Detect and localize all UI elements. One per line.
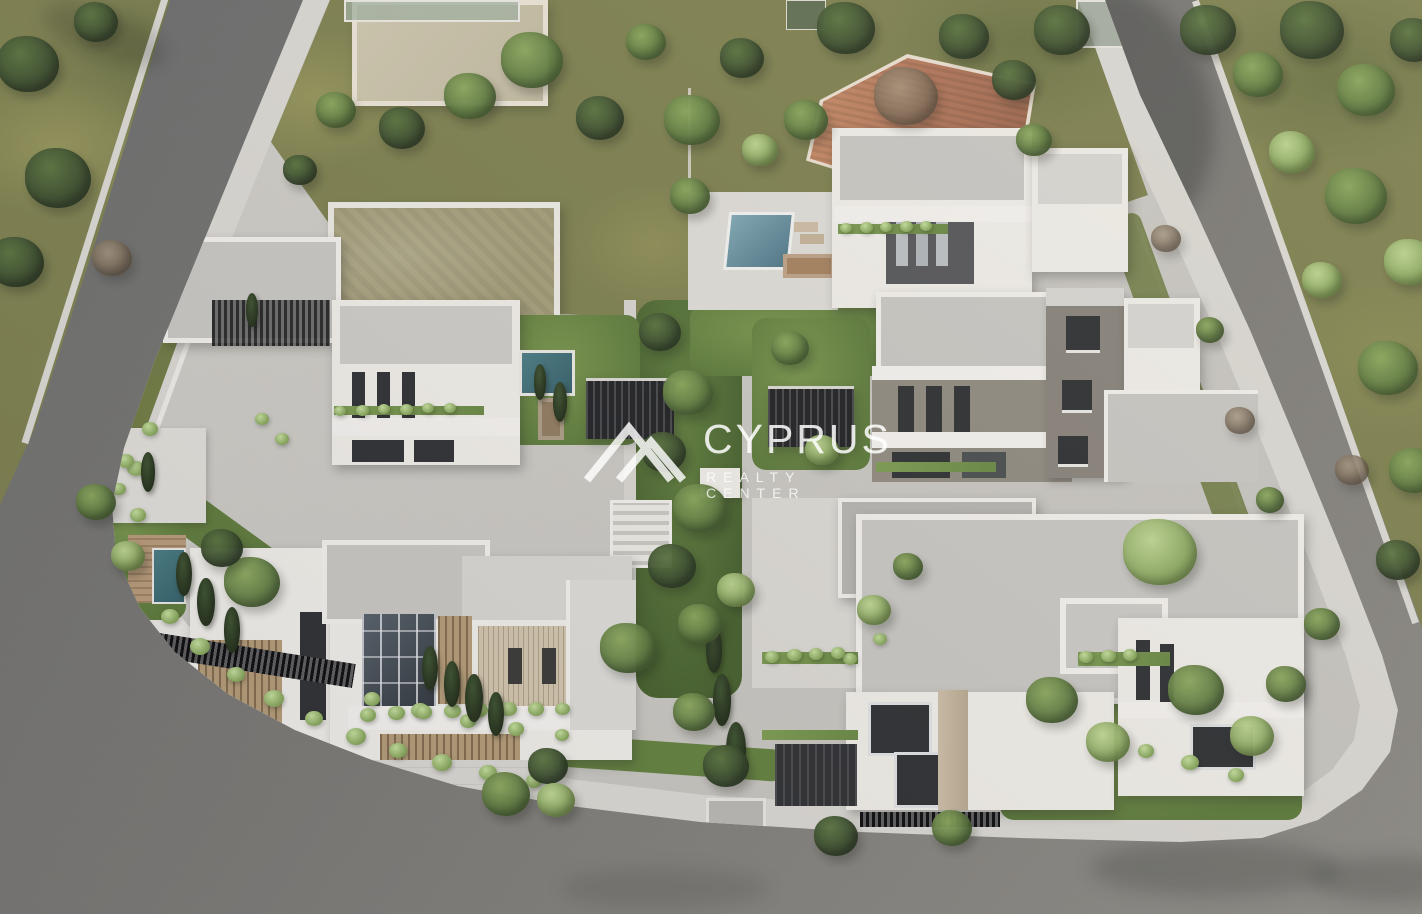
bush xyxy=(831,647,845,659)
window xyxy=(1136,640,1150,700)
tree xyxy=(1337,64,1395,116)
tree xyxy=(1376,540,1420,580)
bush xyxy=(1079,651,1093,663)
tree xyxy=(379,107,425,148)
street-fence xyxy=(588,824,706,840)
travertine-pier xyxy=(938,690,968,810)
tree xyxy=(1280,1,1344,59)
tree xyxy=(742,134,778,166)
tree xyxy=(528,748,568,784)
tree xyxy=(1225,407,1255,434)
watermark-brand: CYPRUS xyxy=(703,416,892,463)
street-fence xyxy=(380,812,560,834)
tree xyxy=(444,73,496,120)
sun-lounger xyxy=(542,648,556,684)
bush xyxy=(118,454,134,468)
tree xyxy=(771,331,809,365)
bush xyxy=(1138,744,1154,758)
tree xyxy=(1016,124,1052,156)
road-shadow xyxy=(560,868,770,908)
tree xyxy=(501,32,563,88)
bush xyxy=(364,692,380,706)
bush xyxy=(416,705,432,719)
watermark: CYPRUS REALTY CENTER xyxy=(583,414,893,504)
window xyxy=(954,386,970,432)
road-shadow xyxy=(1090,840,1340,896)
tree xyxy=(1266,666,1306,702)
tree xyxy=(576,96,624,139)
bush xyxy=(555,729,569,741)
bush xyxy=(130,508,146,522)
tree xyxy=(814,816,858,856)
bush xyxy=(765,651,779,663)
cypress-tree xyxy=(713,674,732,726)
villa-upper-left-roof2 xyxy=(340,306,512,364)
villa-right-lower-roof xyxy=(1104,390,1258,482)
cypress-tree xyxy=(553,382,567,422)
bush xyxy=(555,703,570,716)
glass-structure xyxy=(344,0,520,22)
tree xyxy=(1302,262,1342,298)
tree xyxy=(992,60,1036,100)
bush xyxy=(508,722,524,736)
tree xyxy=(1233,52,1283,97)
tree xyxy=(1180,5,1236,55)
bush xyxy=(142,422,158,436)
tree xyxy=(600,623,656,673)
bush xyxy=(432,754,452,771)
tree xyxy=(74,2,118,42)
tree xyxy=(482,772,530,815)
tree xyxy=(1335,455,1369,486)
bush xyxy=(528,702,544,716)
cypress-tree xyxy=(488,692,504,736)
tree xyxy=(893,553,923,580)
tree xyxy=(316,92,356,128)
floor-band xyxy=(872,432,1072,448)
bush xyxy=(161,609,179,624)
cypress-tree xyxy=(141,452,155,492)
bush xyxy=(255,413,269,425)
tree xyxy=(92,240,132,276)
balcony-planter xyxy=(876,462,996,472)
roof-planter xyxy=(762,730,858,740)
tree xyxy=(648,544,696,587)
cypress-tree xyxy=(176,552,192,596)
tree xyxy=(1123,519,1197,586)
tree xyxy=(857,595,891,626)
tree xyxy=(639,313,681,351)
tree xyxy=(76,484,116,520)
window xyxy=(898,386,914,432)
sun-lounger xyxy=(508,648,522,684)
pool-left-villa xyxy=(519,350,575,396)
tree xyxy=(1358,341,1418,395)
tree xyxy=(670,178,710,214)
cypress-tree xyxy=(422,646,438,690)
bush xyxy=(1228,768,1244,782)
sun-lounger xyxy=(800,234,824,244)
bush xyxy=(360,708,376,722)
aerial-render-scene: CYPRUS REALTY CENTER xyxy=(0,0,1422,914)
bush xyxy=(264,690,284,707)
bush xyxy=(103,433,118,446)
bush xyxy=(275,433,289,445)
tree xyxy=(111,541,145,572)
tree xyxy=(1256,487,1284,512)
tree xyxy=(1034,5,1090,55)
watermark-tagline: REALTY CENTER xyxy=(706,469,893,501)
villa-top-wing-roof xyxy=(1038,154,1122,204)
window xyxy=(926,386,942,432)
cypress-tree xyxy=(444,661,461,707)
villa-right-tower-roof xyxy=(1046,288,1124,306)
bush xyxy=(900,221,913,232)
tree xyxy=(874,67,938,125)
bush xyxy=(809,648,823,660)
bush xyxy=(346,728,366,745)
tree xyxy=(201,529,243,567)
tree xyxy=(932,810,972,846)
tree xyxy=(1269,131,1315,172)
tree xyxy=(626,24,666,60)
tree xyxy=(1151,225,1181,252)
tree xyxy=(673,693,715,731)
tree xyxy=(537,783,575,817)
floor-band xyxy=(872,366,1072,380)
tree xyxy=(283,155,317,186)
tree xyxy=(1230,716,1274,756)
tree xyxy=(1086,722,1130,762)
tree xyxy=(817,2,875,54)
outdoor-dining-table xyxy=(783,254,835,278)
bush xyxy=(400,404,413,415)
tree xyxy=(1026,677,1078,724)
tree xyxy=(717,573,755,607)
bush xyxy=(1123,649,1137,661)
bush xyxy=(843,653,857,665)
sun-lounger xyxy=(794,222,818,232)
window xyxy=(1066,316,1100,353)
tree xyxy=(663,370,713,415)
mountain-peaks-icon xyxy=(583,416,701,484)
cypress-tree xyxy=(465,674,482,722)
street-fence xyxy=(860,812,1000,827)
villa-upper-left-slat-roof xyxy=(212,300,330,346)
tree xyxy=(678,604,722,644)
tree xyxy=(939,14,989,59)
tree xyxy=(1196,317,1224,342)
tree xyxy=(703,745,749,786)
tree xyxy=(0,36,59,92)
cypress-tree xyxy=(246,293,258,327)
tree xyxy=(1304,608,1340,640)
window xyxy=(1062,380,1092,413)
tree xyxy=(25,148,91,207)
tree xyxy=(784,100,828,140)
bush xyxy=(860,222,873,233)
tree xyxy=(1168,665,1224,715)
bush xyxy=(873,633,887,645)
bush xyxy=(388,706,405,720)
tree xyxy=(720,38,764,78)
window xyxy=(1058,436,1088,467)
balcony-band xyxy=(332,418,520,436)
balcony-band xyxy=(834,206,1032,222)
window xyxy=(414,440,454,462)
window xyxy=(352,440,404,462)
bush xyxy=(1101,650,1116,663)
tree xyxy=(664,95,720,145)
utility-box xyxy=(706,798,766,846)
bush xyxy=(190,638,210,655)
cypress-tree xyxy=(224,607,241,653)
cypress-tree xyxy=(197,578,214,626)
villa-right-wing-roof xyxy=(1128,304,1194,348)
villa-top-roof xyxy=(840,136,1024,200)
window xyxy=(868,702,932,756)
bush xyxy=(356,405,369,416)
tree xyxy=(1325,168,1387,224)
bush xyxy=(787,649,802,662)
carport-opening xyxy=(775,744,857,806)
